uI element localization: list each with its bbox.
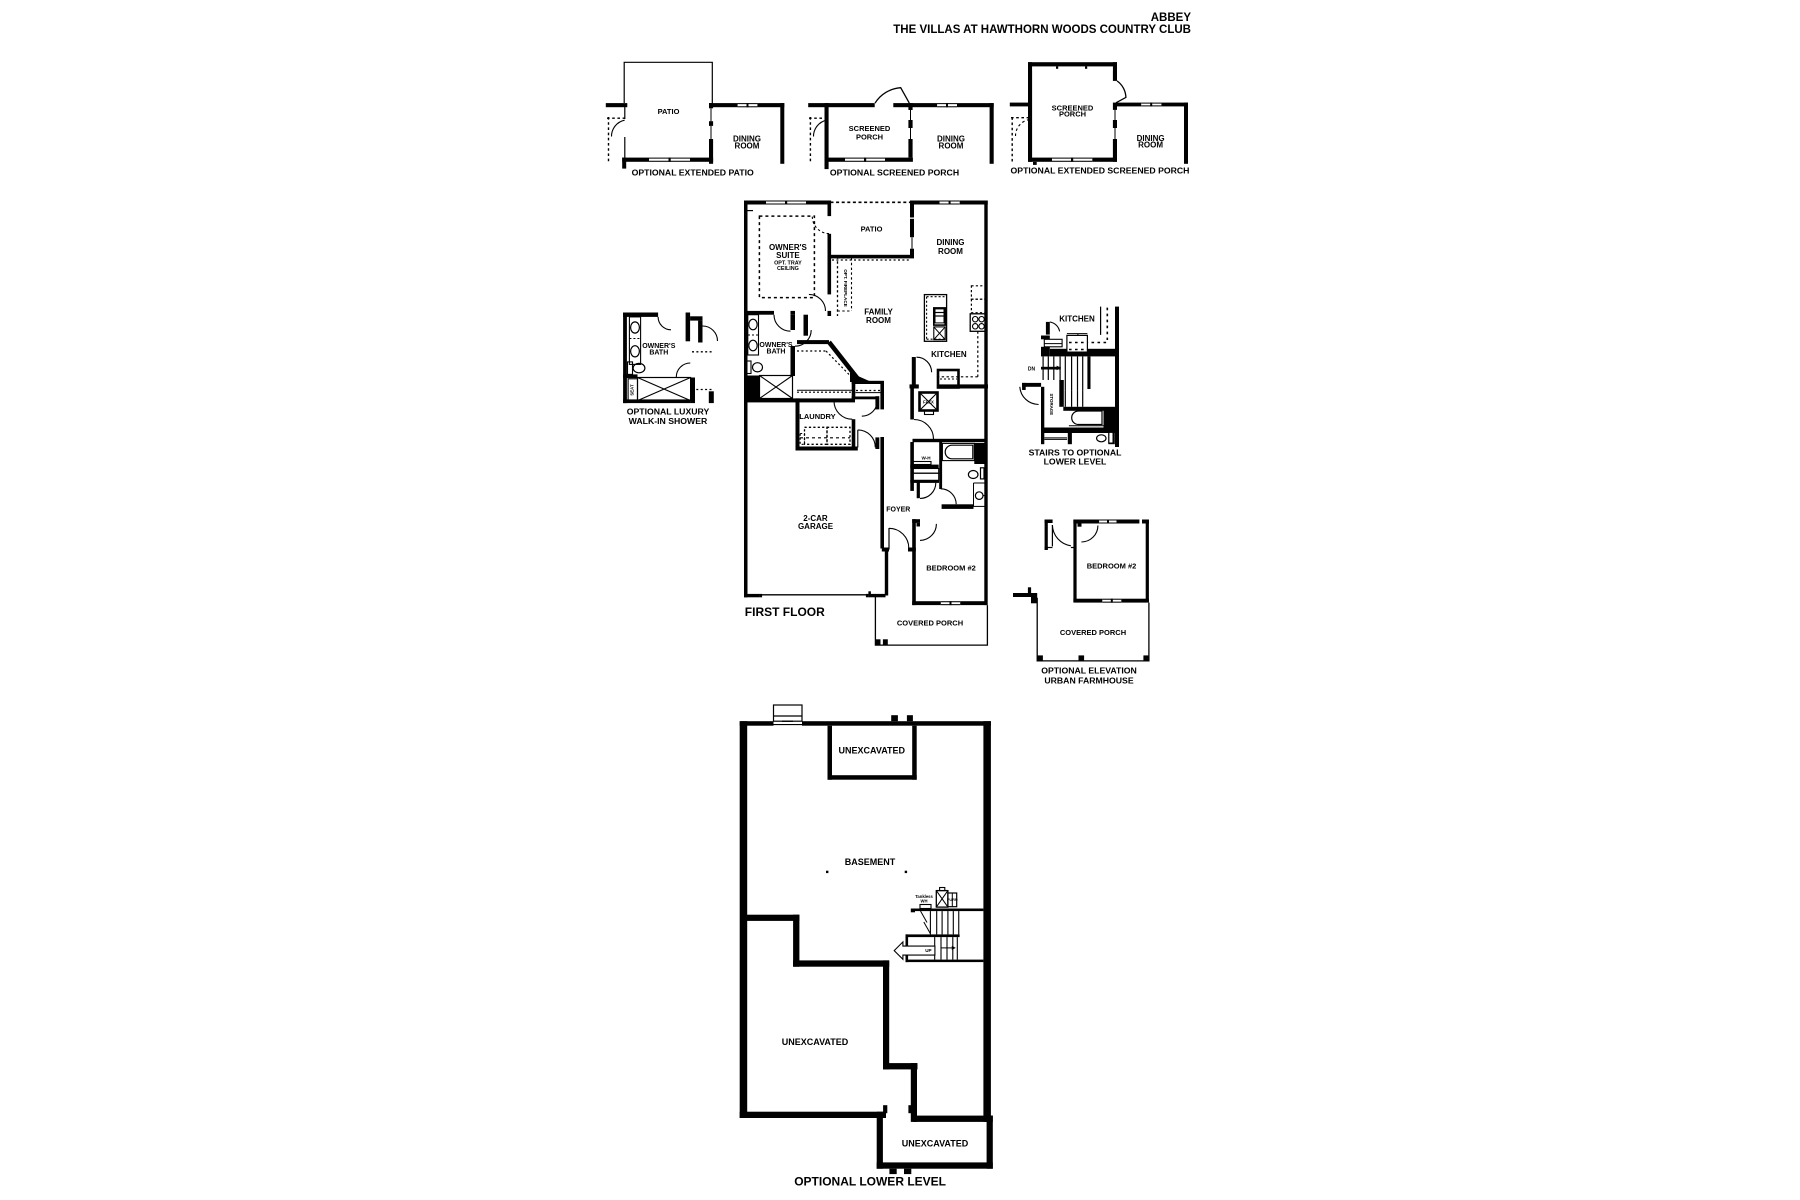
svg-text:BATH: BATH [649, 349, 668, 356]
svg-text:PATIO: PATIO [861, 224, 883, 233]
svg-text:OPTIONAL LOWER LEVEL: OPTIONAL LOWER LEVEL [794, 1175, 946, 1189]
svg-text:ROOM: ROOM [866, 316, 891, 325]
svg-text:PATIO: PATIO [658, 107, 680, 116]
svg-text:UNEXCAVATED: UNEXCAVATED [782, 1037, 849, 1047]
svg-text:FIRST FLOOR: FIRST FLOOR [745, 605, 825, 619]
svg-text:OPTIONAL SCREENED PORCH: OPTIONAL SCREENED PORCH [830, 168, 959, 178]
svg-text:UNEXCAVATED: UNEXCAVATED [902, 1138, 969, 1148]
svg-text:FLEX: FLEX [923, 400, 934, 405]
svg-text:OPTIONAL EXTENDED PATIO: OPTIONAL EXTENDED PATIO [632, 168, 754, 178]
svg-text:OPTIONAL EXTENDED SCREENED POR: OPTIONAL EXTENDED SCREENED PORCH [1011, 166, 1190, 176]
svg-text:ABBEY: ABBEY [1151, 12, 1192, 24]
svg-text:GARAGE: GARAGE [798, 522, 834, 531]
svg-text:BATH: BATH [767, 348, 786, 355]
svg-text:W-H: W-H [921, 456, 931, 461]
svg-text:FOYER: FOYER [886, 507, 910, 514]
svg-text:PORCH: PORCH [1059, 110, 1086, 119]
svg-text:URBAN FARMHOUSE: URBAN FARMHOUSE [1044, 675, 1133, 685]
svg-text:WALK-IN SHOWER: WALK-IN SHOWER [629, 416, 708, 426]
svg-text:FURN: FURN [947, 898, 958, 902]
svg-text:LOWER LEVEL: LOWER LEVEL [1044, 457, 1107, 467]
svg-text:BASEMENT: BASEMENT [845, 857, 896, 867]
svg-text:BEDROOM #2: BEDROOM #2 [926, 563, 976, 572]
svg-text:ROOM: ROOM [938, 247, 963, 256]
svg-text:THE VILLAS AT HAWTHORN WOODS C: THE VILLAS AT HAWTHORN WOODS COUNTRY CLU… [893, 24, 1191, 36]
svg-text:UNEXCAVATED: UNEXCAVATED [839, 746, 906, 756]
svg-text:KITCHEN: KITCHEN [931, 350, 967, 359]
svg-text:DN: DN [1028, 367, 1036, 373]
svg-text:PORCH: PORCH [856, 133, 883, 142]
svg-text:SUITE: SUITE [776, 251, 800, 260]
svg-text:COVERED PORCH: COVERED PORCH [897, 618, 963, 627]
svg-text:WH: WH [921, 899, 928, 904]
svg-text:ROOM: ROOM [1138, 141, 1163, 150]
svg-text:ROOM: ROOM [939, 142, 964, 151]
svg-text:STORAGE: STORAGE [1049, 394, 1054, 416]
svg-text:KITCHEN: KITCHEN [1059, 314, 1095, 323]
svg-text:SEAT: SEAT [630, 384, 635, 396]
svg-text:OPTIONAL ELEVATION: OPTIONAL ELEVATION [1041, 666, 1137, 676]
svg-text:OPT. FIREPLACE: OPT. FIREPLACE [843, 269, 848, 307]
svg-text:UP: UP [925, 948, 931, 953]
svg-text:SCREENED: SCREENED [849, 124, 891, 133]
svg-text:CEILING: CEILING [777, 266, 799, 272]
svg-text:BEDROOM #2: BEDROOM #2 [1087, 561, 1137, 570]
svg-text:COVERED PORCH: COVERED PORCH [1060, 628, 1126, 637]
svg-text:LAUNDRY: LAUNDRY [799, 412, 835, 421]
svg-text:ROOM: ROOM [735, 142, 760, 151]
